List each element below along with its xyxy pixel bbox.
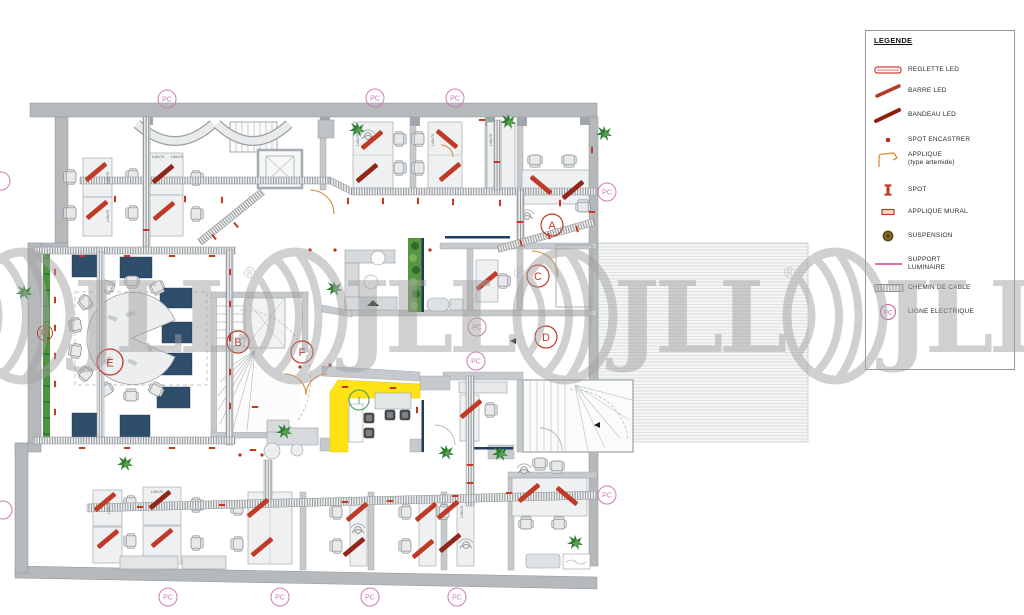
svg-text:PC: PC [602,190,612,197]
applique-icon [872,150,908,168]
svg-text:140x70: 140x70 [106,172,110,184]
conference-room [43,250,207,440]
svg-text:PC: PC [884,310,893,316]
svg-text:140x70: 140x70 [107,502,111,514]
svg-text:PC: PC [365,595,375,602]
bandeau-led-icon [872,106,908,124]
legend-item-suspension: SUSPENSION [872,227,953,245]
applique-mural-icon [872,203,908,221]
support-luminaire-icon [872,255,908,273]
legend-item-applique-mural: APPLIQUE MURAL [872,203,968,221]
svg-text:I: I [358,396,361,407]
svg-text:PC: PC [452,595,462,602]
svg-text:140x70: 140x70 [431,134,435,146]
kitchen-area [330,380,513,452]
legend-item-bandeau-led: BANDEAU LED [872,106,956,124]
legend-item-spot-encastrer: SPOT ENCASTRER [872,131,970,149]
svg-text:PC: PC [162,97,172,104]
legend-item-applique: APPLIQUE(type artemide) [872,150,955,168]
svg-text:F: F [299,347,306,359]
svg-text:B: B [234,337,241,349]
svg-text:140x70: 140x70 [171,155,183,159]
svg-text:140x70: 140x70 [106,210,110,222]
svg-text:PC: PC [370,96,380,103]
glazing-line [445,236,510,239]
svg-text:PC: PC [275,595,285,602]
staircase-curved-right [523,380,633,452]
plant-wall-strip [43,250,50,440]
svg-text:140x70: 140x70 [152,155,164,159]
svg-text:140x70: 140x70 [489,134,493,146]
desks [83,153,183,236]
svg-text:PC: PC [471,359,481,366]
suspension-icon [872,227,908,245]
svg-text:E: E [106,358,113,370]
barre-led-icon [872,82,908,100]
svg-text:140x70: 140x70 [151,490,163,494]
legend-title: LEGENDE [874,36,912,45]
svg-text:D: D [542,332,550,344]
svg-text:A: A [548,220,556,232]
svg-text:C: C [534,271,542,283]
svg-text:PC: PC [450,96,460,103]
svg-text:PC: PC [472,325,482,332]
spot-icon [872,181,908,199]
svg-text:PC: PC [602,493,612,500]
legend-item-barre-led: BARRE LED [872,82,947,100]
legend-item-reglette-led: REGLETTE LED [872,61,959,79]
svg-text:PC: PC [163,595,173,602]
legend-item-chemin-de-cable: CHEMIN DE CABLE [872,279,971,297]
ligne-electrique-icon: PC [872,303,908,321]
legend-item-spot: SPOT [872,181,927,199]
legend-item-support-luminaire: SUPPORTLUMINAIRE [872,255,945,273]
legend-item-ligne-electrique: PC LIGNE ELECTRIQUE [872,303,974,321]
svg-text:140x70: 140x70 [460,506,464,518]
legend-panel: LEGENDE REGLETTE LED BARRE LED BANDEAU L… [865,30,1015,370]
floor-plan-page: 140x70 140x70 140x70 140x70 140x70 140x7… [0,0,1024,615]
svg-text:G: G [41,327,50,339]
reglette-led-icon [872,61,908,79]
chemin-de-cable-icon [872,279,908,297]
svg-text:140x70: 140x70 [356,134,360,146]
spot-encastrer-icon [872,131,908,149]
